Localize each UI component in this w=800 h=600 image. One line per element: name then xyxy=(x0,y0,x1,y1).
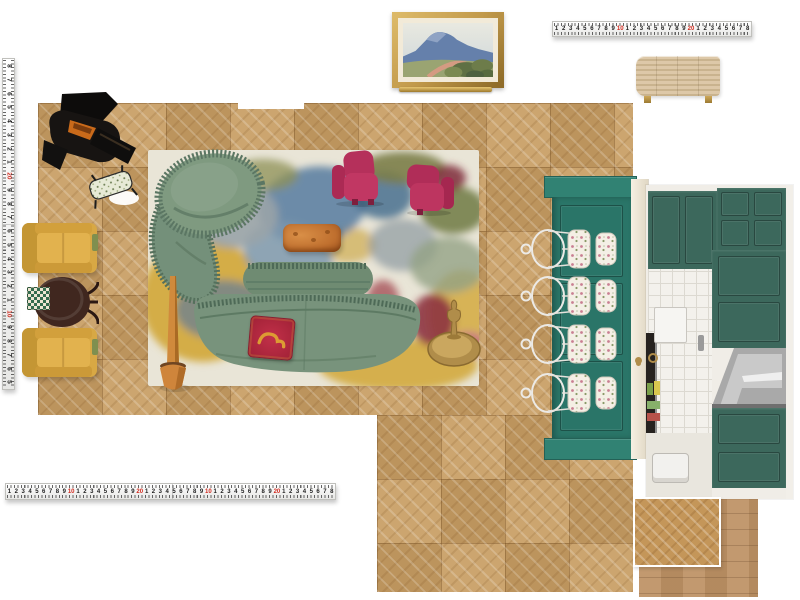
burl-ottoman[interactable] xyxy=(283,224,341,252)
brass-side-table[interactable] xyxy=(427,296,481,368)
burl-spot xyxy=(311,238,316,242)
toaster xyxy=(652,453,689,483)
bar-stool[interactable] xyxy=(516,321,628,367)
kitchen-island[interactable] xyxy=(540,176,641,460)
throw-pillow-red[interactable] xyxy=(247,315,295,361)
ruler-bottom[interactable]: 1234567891012345678920123456789101234567… xyxy=(5,483,336,500)
ruler-bottom-numbers: 1234567891012345678920123456789101234567… xyxy=(6,484,335,499)
sideboard-leg xyxy=(644,96,651,103)
ruler-top-numbers: 123456789101234567892012345678 xyxy=(553,22,751,36)
ruler-top[interactable]: 123456789101234567892012345678 xyxy=(552,21,752,37)
grand-piano[interactable] xyxy=(40,90,148,210)
bar-stool[interactable] xyxy=(516,273,628,319)
burl-spot xyxy=(325,230,330,234)
accent-chair-pink-1[interactable] xyxy=(322,149,392,207)
base-cabinets xyxy=(712,408,786,488)
chair-arm xyxy=(35,366,92,377)
tall-cabinet xyxy=(712,250,786,348)
spice-shelf xyxy=(647,413,660,421)
chair-lumbar-pillow xyxy=(92,234,98,251)
floor-gap xyxy=(238,103,304,109)
faucet-icon xyxy=(635,357,642,364)
chair-seat xyxy=(37,338,90,367)
wall-strip xyxy=(786,185,793,499)
pot-rail xyxy=(648,353,658,363)
bottle xyxy=(647,383,653,395)
chair-lumbar-pillow xyxy=(92,339,98,356)
bar-stool[interactable] xyxy=(516,370,628,416)
bar-stool[interactable] xyxy=(516,226,628,272)
island-end-cap xyxy=(544,176,637,198)
pot-filler-faucet xyxy=(698,335,704,351)
curved-sofa[interactable] xyxy=(186,258,426,376)
wall-art-landscape[interactable] xyxy=(392,12,504,88)
island-end-cap xyxy=(544,438,637,460)
ruler-seam xyxy=(3,224,14,225)
landscape-art xyxy=(403,23,493,77)
floor-swatch-chevron[interactable] xyxy=(633,497,721,567)
armchair-yellow-2[interactable] xyxy=(22,328,97,377)
upper-cabinets-left xyxy=(648,191,717,269)
sideboard-door-seams xyxy=(636,56,720,96)
upper-cabinets-right xyxy=(717,188,786,250)
sideboard-leg xyxy=(705,96,712,103)
armchair-yellow-1[interactable] xyxy=(22,223,97,273)
fluted-sideboard[interactable] xyxy=(636,56,720,103)
chair-arm xyxy=(35,262,92,273)
range-hood xyxy=(712,348,786,408)
chair-seat xyxy=(37,233,90,263)
bottle xyxy=(654,381,660,395)
ruler-left[interactable]: 87654321209876543211098765 xyxy=(2,58,15,390)
intercom-box xyxy=(654,307,687,343)
picture-ledge[interactable] xyxy=(399,87,492,92)
kitchen-photo[interactable] xyxy=(646,185,793,499)
spice-shelf xyxy=(647,401,660,409)
ruler-seam xyxy=(172,484,173,499)
design-canvas: 123456789101234567892012345678 876543212… xyxy=(0,0,800,600)
floor-planter[interactable] xyxy=(155,276,191,392)
accent-chair-pink-2[interactable] xyxy=(399,163,463,216)
checkerboard[interactable] xyxy=(27,287,50,310)
burl-spot xyxy=(293,232,298,236)
pillow-gold-motif xyxy=(248,316,294,360)
